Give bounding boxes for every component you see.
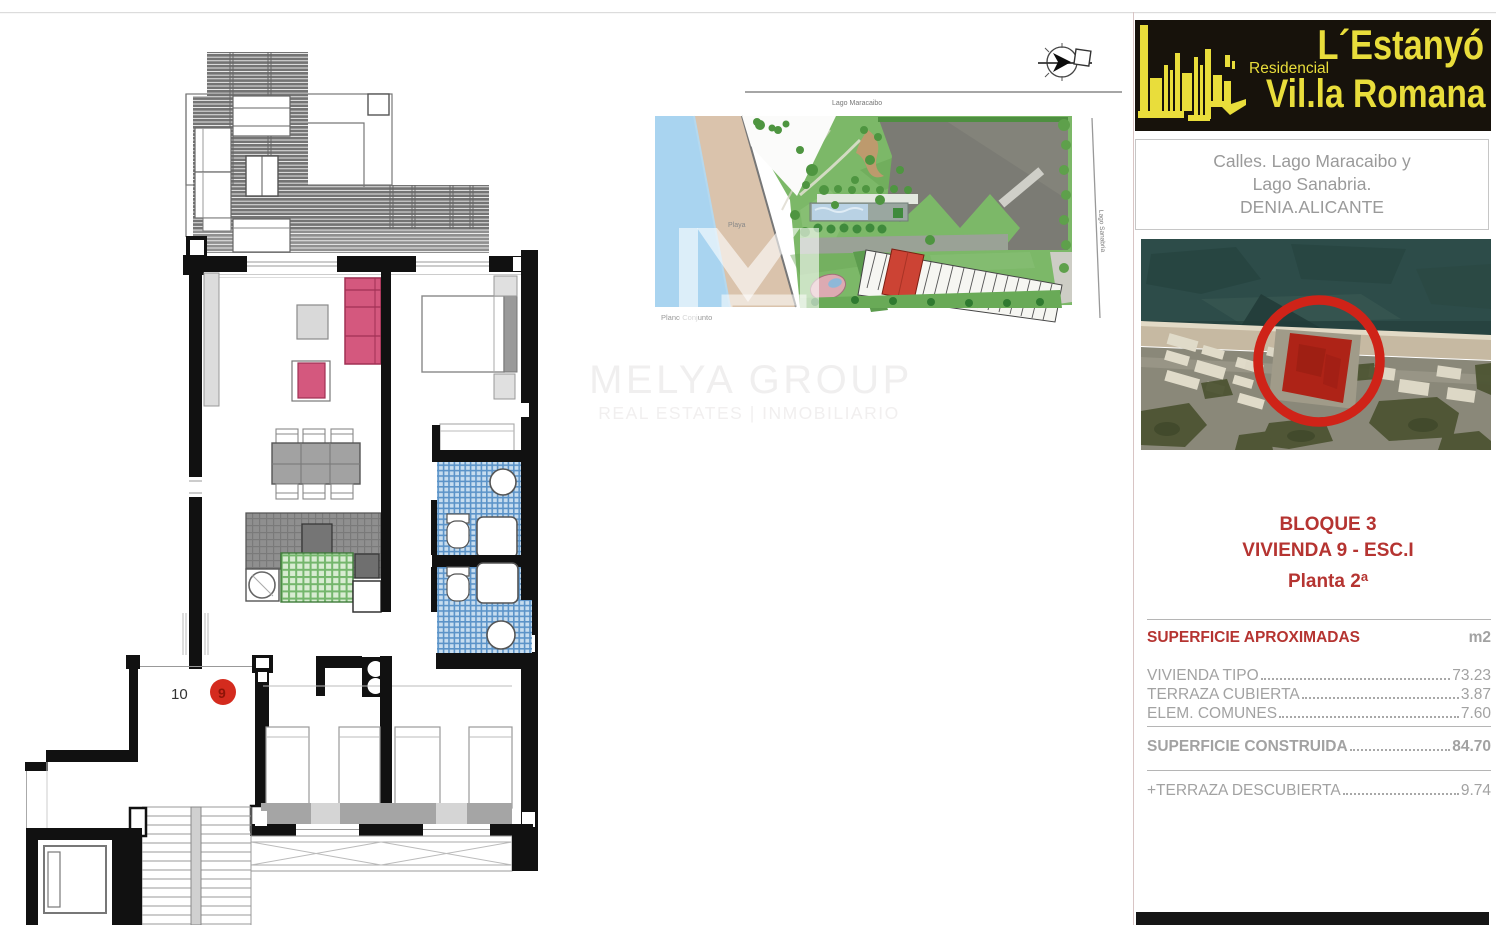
svg-text:MELYA GROUP: MELYA GROUP — [589, 358, 913, 402]
svg-text:Lago Sanabria: Lago Sanabria — [1097, 210, 1106, 253]
svg-text:10: 10 — [171, 686, 188, 703]
svg-text:Playa: Playa — [728, 222, 746, 229]
svg-text:REAL ESTATES | INMOBILIARIO: REAL ESTATES | INMOBILIARIO — [598, 403, 899, 423]
svg-text:9: 9 — [218, 685, 226, 701]
svg-text:Lago Maracaibo: Lago Maracaibo — [832, 100, 882, 107]
